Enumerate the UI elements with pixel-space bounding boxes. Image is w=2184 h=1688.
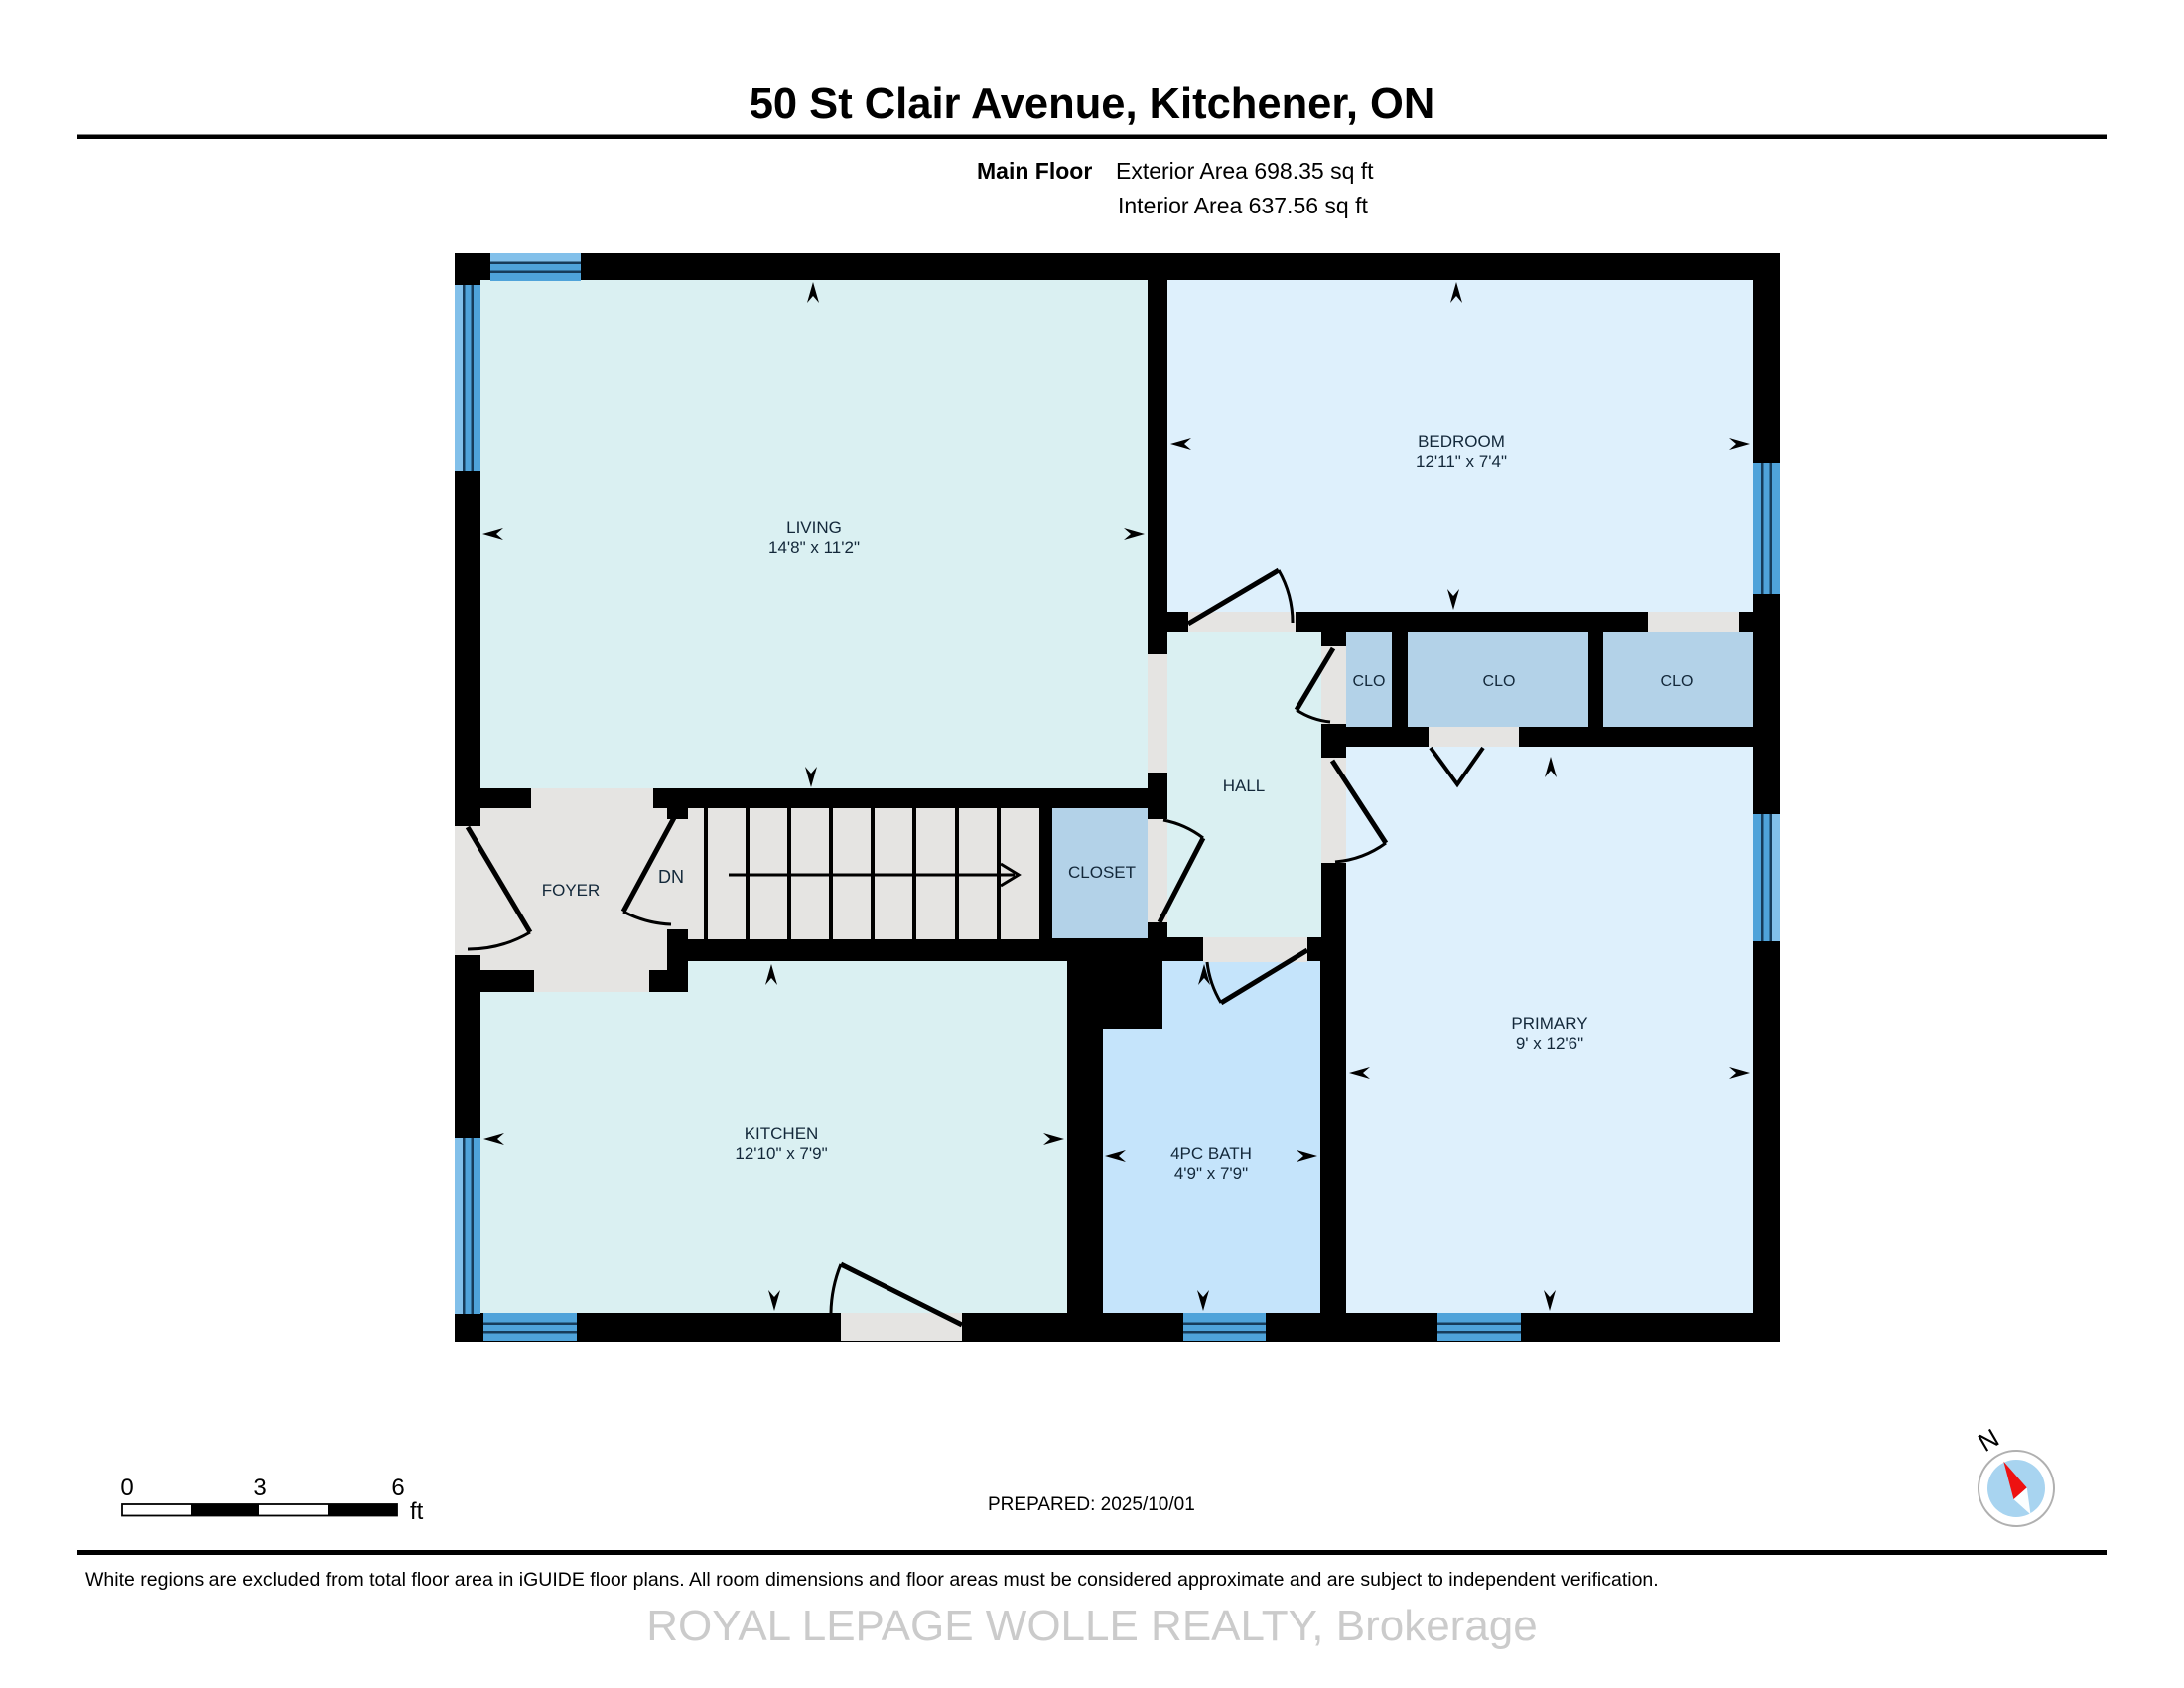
- svg-text:DN: DN: [658, 867, 684, 887]
- svg-text:CLO: CLO: [1661, 673, 1694, 690]
- svg-text:PREPARED: 2025/10/01: PREPARED: 2025/10/01: [988, 1494, 1195, 1515]
- svg-text:KITCHEN: KITCHEN: [745, 1124, 819, 1143]
- svg-text:CLO: CLO: [1483, 673, 1516, 690]
- svg-text:Interior Area 637.56 sq ft: Interior Area 637.56 sq ft: [1118, 193, 1368, 218]
- svg-text:White regions are excluded fro: White regions are excluded from total fl…: [85, 1569, 1659, 1591]
- svg-text:50 St Clair Avenue, Kitchener,: 50 St Clair Avenue, Kitchener, ON: [750, 80, 1435, 128]
- svg-text:HALL: HALL: [1223, 776, 1266, 795]
- svg-text:6: 6: [391, 1475, 404, 1501]
- svg-text:CLO: CLO: [1353, 673, 1386, 690]
- svg-text:Main Floor: Main Floor: [977, 158, 1092, 184]
- svg-text:ft: ft: [410, 1498, 424, 1525]
- svg-text:4'9" x 7'9": 4'9" x 7'9": [1174, 1164, 1248, 1183]
- svg-text:4PC BATH: 4PC BATH: [1170, 1144, 1252, 1163]
- svg-text:BEDROOM: BEDROOM: [1418, 432, 1505, 451]
- svg-text:ROYAL LEPAGE WOLLE REALTY, Bro: ROYAL LEPAGE WOLLE REALTY, Brokerage: [646, 1602, 1538, 1650]
- svg-text:LIVING: LIVING: [786, 518, 842, 537]
- svg-text:Exterior Area 698.35 sq ft: Exterior Area 698.35 sq ft: [1116, 158, 1374, 184]
- svg-text:CLOSET: CLOSET: [1068, 863, 1136, 882]
- svg-text:12'10" x 7'9": 12'10" x 7'9": [735, 1144, 827, 1163]
- svg-text:FOYER: FOYER: [542, 881, 601, 900]
- svg-text:PRIMARY: PRIMARY: [1511, 1014, 1587, 1033]
- svg-text:12'11" x 7'4": 12'11" x 7'4": [1416, 452, 1507, 471]
- svg-text:3: 3: [253, 1475, 266, 1501]
- svg-text:0: 0: [120, 1475, 133, 1501]
- svg-text:14'8" x 11'2": 14'8" x 11'2": [768, 538, 860, 557]
- svg-text:9' x 12'6": 9' x 12'6": [1516, 1034, 1583, 1053]
